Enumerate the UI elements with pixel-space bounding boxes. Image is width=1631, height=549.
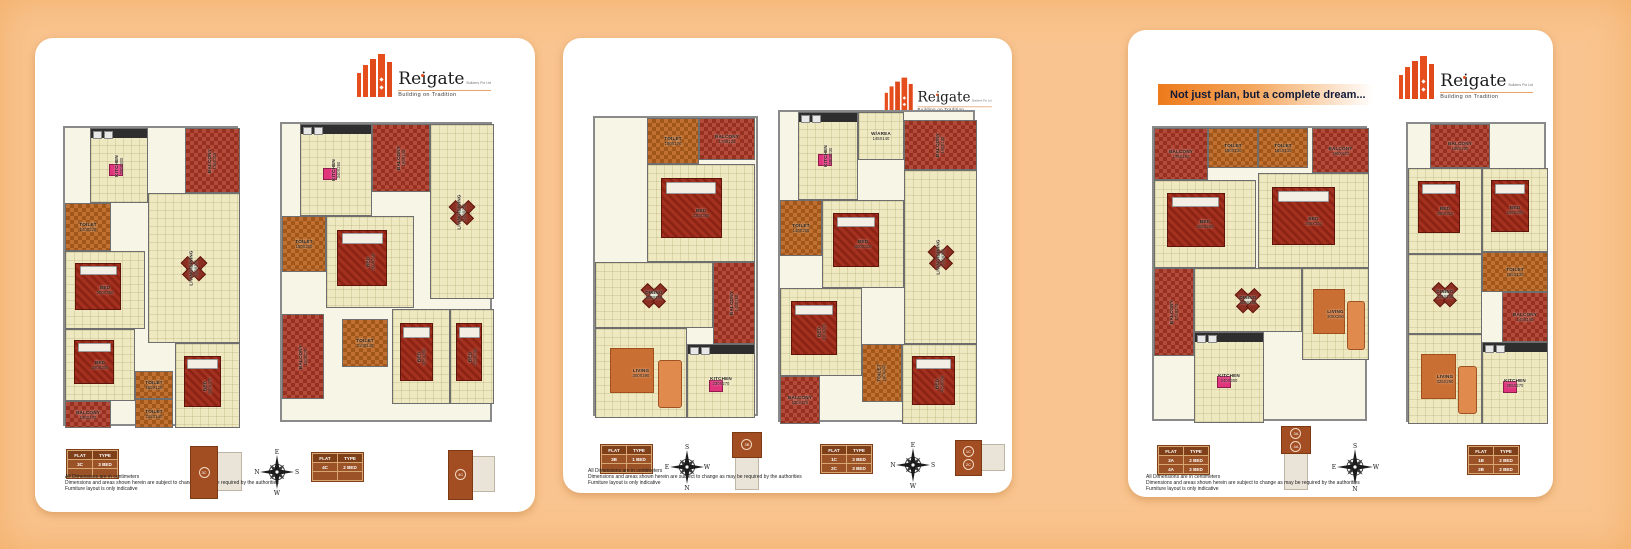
room-label: TOILET180X170 bbox=[664, 136, 681, 146]
room-label: BED290X310 bbox=[1437, 206, 1454, 216]
room-label: TOILET150X210 bbox=[295, 239, 312, 249]
room-label: BALCONY175X270 bbox=[1169, 300, 1179, 324]
room-label: KITCHEN280X230 bbox=[823, 145, 833, 167]
bed-icon bbox=[1272, 187, 1335, 245]
sofa-icon bbox=[1347, 301, 1365, 350]
room-label: BALCONY160X270 bbox=[298, 344, 308, 368]
bed-icon bbox=[791, 301, 838, 355]
key-plan-flat-id: 4A bbox=[1290, 441, 1301, 452]
svg-text:E: E bbox=[275, 449, 279, 456]
key-plan-flat-id: 1C bbox=[963, 446, 974, 457]
svg-text:E: E bbox=[1332, 464, 1336, 471]
disclaimer: All Dimensions are in centimeters Dimens… bbox=[588, 468, 802, 487]
room-label: BED280X300 bbox=[92, 360, 109, 370]
room-label: BALCONY190X140 bbox=[396, 146, 406, 170]
flat-type-table: FLATTYPE4C2 BED bbox=[312, 453, 363, 481]
legend: FLATTYPE3A2 BED4A2 BED3A4ASWNEFLATTYPE1B… bbox=[1128, 30, 1553, 497]
room-label: BED425X300 bbox=[935, 376, 945, 393]
room-label: BALCONY170X120 bbox=[715, 134, 739, 144]
disclaimer-line: Furniture layout is only indicative bbox=[65, 486, 279, 492]
sofa-icon bbox=[658, 360, 682, 408]
key-plan-highlight: 3C bbox=[190, 446, 218, 499]
svg-text:W: W bbox=[1373, 464, 1380, 471]
key-plan-footprint bbox=[980, 444, 1005, 471]
room-label: BALCONY130X175 bbox=[788, 395, 812, 405]
room-label: TOILET140X220 bbox=[79, 222, 96, 232]
brochure-panel-2: Reigate Builders Pvt Ltd Building on Tra… bbox=[563, 38, 1012, 493]
page-background: Reigate Builders Pvt Ltd Building on Tra… bbox=[0, 0, 1631, 549]
flat-type-table: FLATTYPE1B2 BED2B2 BED bbox=[1468, 446, 1519, 474]
kitchen-counter-icon bbox=[1195, 333, 1263, 342]
disclaimer-line: Furniture layout is only indicative bbox=[588, 480, 802, 486]
svg-text:W: W bbox=[910, 483, 917, 489]
room-label: KITCHEN255X270 bbox=[1504, 378, 1526, 388]
room-label: DINING425X250 bbox=[1436, 289, 1453, 299]
flat-type-table: FLATTYPE3A2 BED4A2 BED bbox=[1158, 446, 1209, 474]
brochure-panel-3: Not just plan, but a complete dream... R… bbox=[1128, 30, 1553, 497]
svg-text:S: S bbox=[931, 462, 935, 469]
sofa-icon bbox=[1458, 366, 1477, 414]
key-plan: 1C2C bbox=[955, 438, 1003, 476]
kitchen-counter-icon bbox=[91, 129, 147, 138]
key-plan-highlight: 3A4A bbox=[1281, 426, 1310, 454]
room-label: DINING400X280 bbox=[1239, 295, 1256, 305]
brochure-panel-1: Reigate Builders Pvt Ltd Building on Tra… bbox=[35, 38, 535, 512]
room-label: TOILET185X130 bbox=[1274, 143, 1291, 153]
svg-text:S: S bbox=[295, 469, 299, 476]
bed-icon bbox=[912, 356, 955, 405]
room-label: BALCONY140X260 bbox=[729, 291, 739, 315]
key-plan-flat-id: 3A bbox=[1290, 428, 1301, 439]
room-label: BED390X310 bbox=[1305, 216, 1322, 226]
disclaimer: All Dimensions are in centimeters Dimens… bbox=[65, 474, 279, 493]
kitchen-counter-icon bbox=[301, 125, 371, 134]
room-label: W/AREA145X140 bbox=[871, 131, 891, 141]
room-label: BALCONY175X150 bbox=[1169, 149, 1193, 159]
room-label: BALCONY130X315 bbox=[208, 148, 218, 172]
room-label: BALCONY190X130 bbox=[936, 133, 946, 157]
room-label: TOILET165X130 bbox=[1506, 267, 1523, 277]
room-label: KITCHEN230X300 bbox=[114, 155, 124, 177]
room-label: BED310X320 bbox=[816, 324, 826, 341]
key-plan-highlight: 3B bbox=[732, 432, 761, 458]
room-label: TOILET185X120 bbox=[145, 380, 162, 390]
room-label: BED255X290 bbox=[467, 348, 477, 365]
room-label: LIVING325X290 bbox=[1437, 374, 1454, 384]
key-plan-flat-id: 4C bbox=[455, 469, 466, 480]
key-plan-flat-id: 2C bbox=[963, 459, 974, 470]
room-label: BED300X350 bbox=[97, 285, 114, 295]
key-plan-flat-id: 3C bbox=[199, 467, 210, 478]
kitchen-counter-icon bbox=[799, 113, 857, 122]
disclaimer: All Dimensions are in centimeters Dimens… bbox=[1146, 474, 1360, 493]
room-label: LIVING300X290 bbox=[633, 368, 650, 378]
room-label: BED355X290 bbox=[1197, 219, 1214, 229]
key-plan-footprint bbox=[471, 456, 495, 492]
compass-rose-icon: ESWN bbox=[889, 441, 937, 489]
room-label: LIVING/DINING600X300 bbox=[936, 239, 946, 274]
kitchen-counter-icon bbox=[688, 345, 754, 354]
room-label: LIVING/DINING500X250 bbox=[457, 194, 467, 229]
room-label: BALCONY130X170 bbox=[76, 410, 100, 420]
room-label: TOILET210X140 bbox=[356, 338, 373, 348]
room-label: TOILET140X210 bbox=[792, 223, 809, 233]
bed-icon bbox=[661, 178, 722, 238]
disclaimer-line: Furniture layout is only indicative bbox=[1146, 486, 1360, 492]
svg-text:N: N bbox=[890, 462, 895, 469]
room-label: TOILET215X140 bbox=[145, 409, 162, 419]
kitchen-counter-icon bbox=[1483, 343, 1547, 352]
svg-text:S: S bbox=[685, 444, 689, 451]
room-label: DINING400X260 bbox=[645, 290, 662, 300]
room-label: TOILET140X240 bbox=[877, 364, 887, 381]
room-label: BED325X290 bbox=[416, 348, 426, 365]
room-label: LIVING/DINING600X370 bbox=[189, 250, 199, 285]
room-label: BED295X300 bbox=[1507, 205, 1524, 215]
room-label: LIVING300X250 bbox=[1327, 309, 1344, 319]
flat-type-table: FLATTYPE1C3 BED2C3 BED bbox=[821, 445, 872, 473]
key-plan-flat-id: 3B bbox=[741, 439, 752, 450]
bed-icon bbox=[337, 230, 387, 286]
room-label: BALCONY145X160 bbox=[1513, 312, 1537, 322]
room-label: KITCHEN340X260 bbox=[331, 159, 341, 181]
svg-text:E: E bbox=[911, 442, 915, 449]
room-label: TOILET180X130 bbox=[1224, 143, 1241, 153]
room-label: KITCHEN240X300 bbox=[1218, 373, 1240, 383]
key-plan: 4C bbox=[448, 448, 493, 500]
room-label: BED300X310 bbox=[855, 239, 872, 249]
room-label: BED300X375 bbox=[203, 377, 213, 394]
room-label: BALCONY195X120 bbox=[1448, 141, 1472, 151]
room-label: BALCONY195X120 bbox=[1328, 146, 1352, 156]
key-plan-highlight: 4C bbox=[448, 450, 473, 500]
room-label: BED330X360 bbox=[693, 208, 710, 218]
key-plan-highlight: 1C2C bbox=[955, 440, 982, 477]
room-label: KITCHEN230X270 bbox=[710, 376, 732, 386]
room-label: BED360X310 bbox=[365, 254, 375, 271]
svg-text:S: S bbox=[1353, 443, 1357, 450]
